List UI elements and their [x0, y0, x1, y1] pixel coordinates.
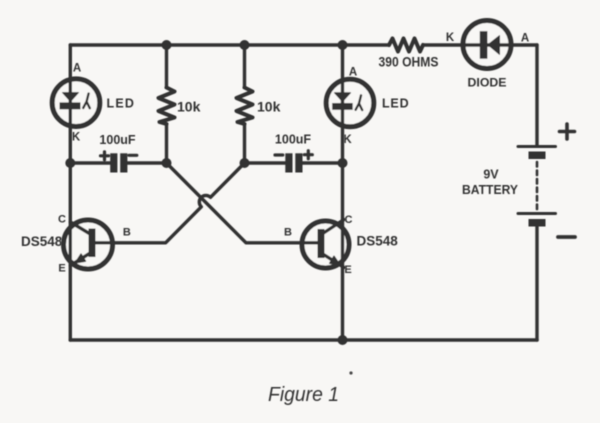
svg-text:LED: LED: [107, 97, 136, 111]
svg-text:E: E: [344, 264, 351, 276]
svg-text:K: K: [446, 32, 455, 44]
svg-text:A: A: [73, 63, 81, 75]
svg-text:100uF: 100uF: [99, 133, 135, 147]
svg-text:LED: LED: [382, 97, 409, 111]
svg-text:100uF: 100uF: [275, 133, 311, 147]
svg-text:10k: 10k: [177, 99, 201, 115]
svg-text:DS548: DS548: [357, 234, 399, 249]
svg-text:390 OHMS: 390 OHMS: [379, 54, 439, 70]
svg-text:K: K: [72, 131, 81, 143]
svg-text:A: A: [521, 33, 529, 45]
svg-text:DIODE: DIODE: [468, 78, 507, 90]
svg-text:9V: 9V: [483, 168, 499, 182]
svg-text:A: A: [349, 67, 357, 79]
svg-text:E: E: [58, 262, 65, 274]
svg-text:C: C: [345, 214, 353, 226]
svg-text:C: C: [58, 214, 66, 226]
svg-text:B: B: [284, 227, 292, 239]
svg-text:10k: 10k: [257, 99, 281, 115]
svg-text:Figure 1: Figure 1: [268, 383, 339, 406]
svg-text:DS548: DS548: [21, 234, 63, 249]
svg-text:K: K: [343, 134, 352, 146]
svg-text:BATTERY: BATTERY: [462, 183, 519, 197]
svg-text:B: B: [123, 226, 131, 238]
